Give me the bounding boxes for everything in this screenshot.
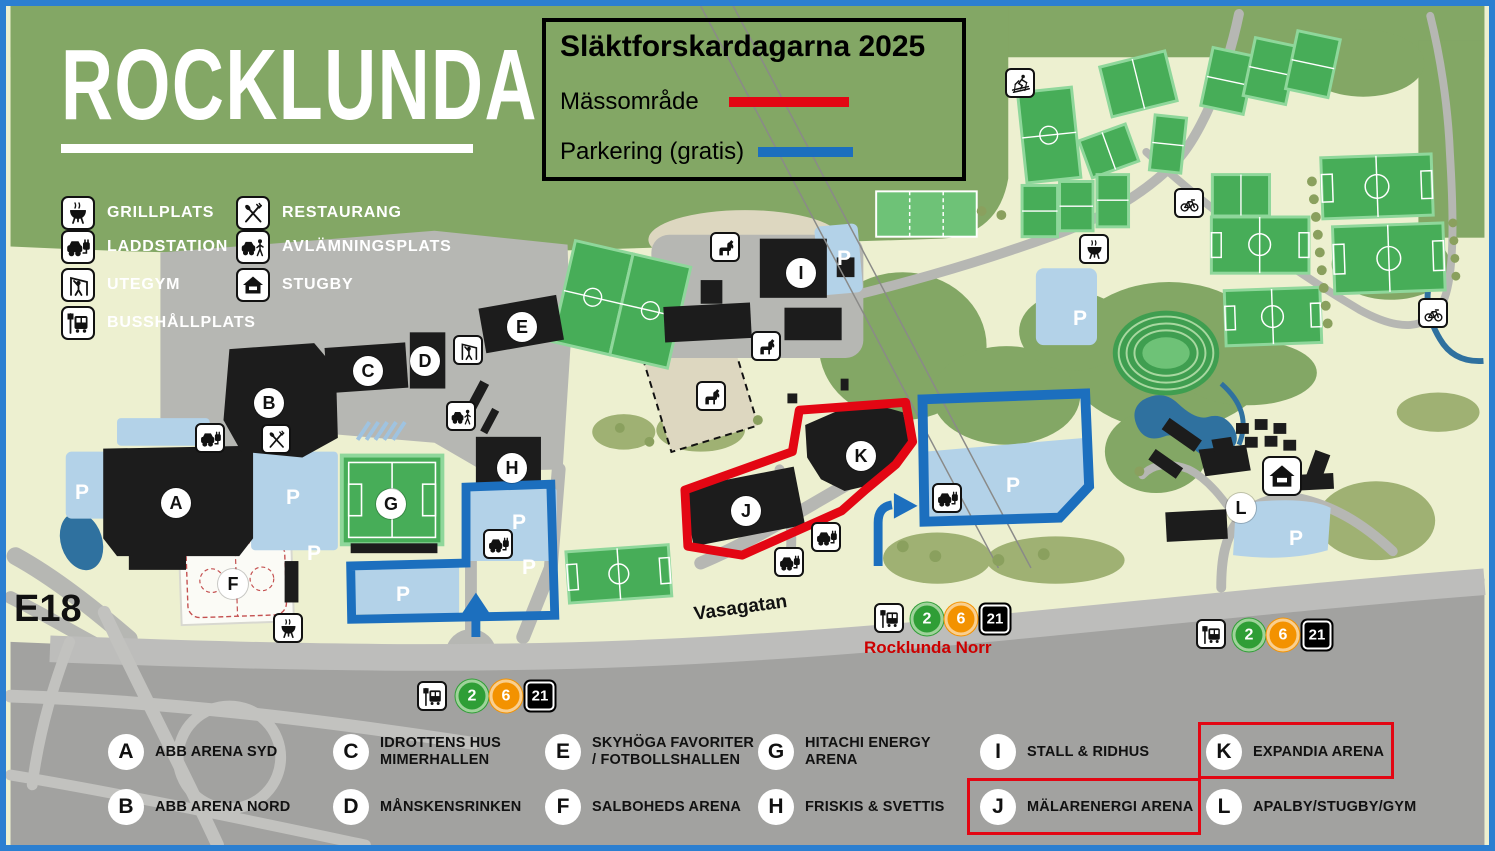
bus-line-badge: 21 xyxy=(1303,621,1332,650)
charging-station-icon xyxy=(483,529,513,559)
parking-label: P xyxy=(396,583,410,607)
index-name: SALBOHEDS ARENA xyxy=(592,799,741,816)
amenity-laddstation: LADDSTATION xyxy=(61,230,228,264)
parking-label: P xyxy=(837,247,851,271)
map-marker-a: A xyxy=(161,488,191,518)
rugby-courts xyxy=(876,191,977,236)
bus-stop-icon xyxy=(61,306,95,340)
index-name: IDROTTENS HUS MIMERHALLEN xyxy=(380,735,501,768)
map-marker-e: E xyxy=(507,312,537,342)
legend-item-massomrade: Mässområde xyxy=(560,88,849,116)
index-entry-f: F SALBOHEDS ARENA xyxy=(545,789,741,825)
legend-item-parkering: Parkering (gratis) xyxy=(560,138,853,166)
index-entry-g: G HITACHI ENERGY ARENA xyxy=(758,734,931,770)
bus-line-badge: 6 xyxy=(945,603,978,636)
parking-label: P xyxy=(1006,474,1020,498)
horse-riding-icon xyxy=(751,331,781,361)
index-name: APALBY/STUGBY/GYM xyxy=(1253,799,1416,816)
amenity-label: UTEGYM xyxy=(107,276,180,294)
restaurant-icon xyxy=(261,424,291,454)
parking-label: P xyxy=(1073,307,1087,331)
index-name: EXPANDIA ARENA xyxy=(1253,744,1384,761)
grill-icon xyxy=(1079,234,1109,264)
map-marker-d: D xyxy=(410,346,440,376)
parking-label: P xyxy=(522,556,536,580)
charging-station-icon xyxy=(195,423,225,453)
parking-label: P xyxy=(75,481,89,505)
index-entry-a: A ABB ARENA SYD xyxy=(108,734,277,770)
horse-riding-icon xyxy=(710,232,740,262)
amenity-label: STUGBY xyxy=(282,276,353,294)
map-marker-k: K xyxy=(846,441,876,471)
bus-line-badge: 21 xyxy=(981,605,1010,634)
index-letter: L xyxy=(1206,789,1242,825)
bus-line-badge: 2 xyxy=(456,680,489,713)
field-south xyxy=(566,545,672,603)
parkering-label: Parkering (gratis) xyxy=(560,138,744,166)
grill-icon xyxy=(61,196,95,230)
charging-station-icon xyxy=(932,483,962,513)
event-legend-title: Släktforskardagarna 2025 xyxy=(560,30,925,64)
amenity-restaurang: RESTAURANG xyxy=(236,196,402,230)
bus-line-badge: 6 xyxy=(490,680,523,713)
index-name: ABB ARENA NORD xyxy=(155,799,290,816)
index-name: STALL & RIDHUS xyxy=(1027,744,1149,761)
map-page: ROCKLUNDA Släktforskardagarna 2025 Mässo… xyxy=(0,0,1495,851)
restaurant-icon xyxy=(236,196,270,230)
map-marker-l: L xyxy=(1226,493,1256,523)
drop-off-icon xyxy=(446,401,476,431)
index-name: HITACHI ENERGY ARENA xyxy=(805,735,931,768)
index-letter: F xyxy=(545,789,581,825)
horse-riding-icon xyxy=(696,381,726,411)
drop-off-icon xyxy=(236,230,270,264)
charging-station-icon xyxy=(61,230,95,264)
massomrade-line-sample xyxy=(729,97,849,107)
parking-label: P xyxy=(307,542,321,566)
index-entry-e: E SKYHÖGA FAVORITER / FOTBOLLSHALLEN xyxy=(545,734,754,770)
bus-stop-icon xyxy=(417,681,447,711)
amenity-label: LADDSTATION xyxy=(107,238,228,256)
index-letter: B xyxy=(108,789,144,825)
cabin-icon xyxy=(236,268,270,302)
bus-line-badge: 21 xyxy=(526,682,555,711)
cabin-icon xyxy=(1262,456,1302,496)
charging-station-icon xyxy=(811,522,841,552)
index-letter: E xyxy=(545,734,581,770)
parking-label: P xyxy=(286,486,300,510)
map-marker-c: C xyxy=(353,356,383,386)
index-entry-b: B ABB ARENA NORD xyxy=(108,789,290,825)
amenity-grillplats: GRILLPLATS xyxy=(61,196,214,230)
parkering-line-sample xyxy=(758,147,853,157)
bus-line-badge: 2 xyxy=(1233,619,1266,652)
index-entry-k: K EXPANDIA ARENA xyxy=(1206,734,1384,770)
parking-label: P xyxy=(512,511,526,535)
index-letter: J xyxy=(980,789,1016,825)
bus-stop-icon xyxy=(1196,619,1226,649)
outdoor-gym-icon xyxy=(453,335,483,365)
index-entry-h: H FRISKIS & SVETTIS xyxy=(758,789,945,825)
skier-icon xyxy=(1005,68,1035,98)
amenity-label: GRILLPLATS xyxy=(107,204,214,222)
amenity-label: RESTAURANG xyxy=(282,204,402,222)
index-letter: A xyxy=(108,734,144,770)
outdoor-gym-icon xyxy=(61,268,95,302)
index-name: MÅNSKENSRINKEN xyxy=(380,799,521,816)
index-letter: G xyxy=(758,734,794,770)
highway-label-e18: E18 xyxy=(14,588,82,631)
bus-line-badge: 6 xyxy=(1267,619,1300,652)
index-letter: D xyxy=(333,789,369,825)
map-marker-h: H xyxy=(497,453,527,483)
index-entry-j: J MÄLARENERGI ARENA xyxy=(980,789,1193,825)
bus-stop-icon xyxy=(874,603,904,633)
index-letter: H xyxy=(758,789,794,825)
index-name: MÄLARENERGI ARENA xyxy=(1027,799,1193,816)
amenity-avlamningsplats: AVLÄMNINGSPLATS xyxy=(236,230,452,264)
bus-stop-name: Rocklunda Norr xyxy=(864,638,992,658)
map-marker-g: G xyxy=(376,489,406,519)
charging-station-icon xyxy=(774,547,804,577)
amenity-label: AVLÄMNINGSPLATS xyxy=(282,238,452,256)
running-track xyxy=(1113,311,1219,396)
parking-label: P xyxy=(1289,527,1303,551)
index-entry-l: L APALBY/STUGBY/GYM xyxy=(1206,789,1416,825)
bus-line-badge: 2 xyxy=(911,603,944,636)
map-marker-j: J xyxy=(731,496,761,526)
massomrade-label: Mässområde xyxy=(560,88,699,116)
map-marker-f: F xyxy=(218,569,248,599)
amenity-stugby: STUGBY xyxy=(236,268,353,302)
index-name: FRISKIS & SVETTIS xyxy=(805,799,945,816)
index-name: ABB ARENA SYD xyxy=(155,744,277,761)
amenity-utegym: UTEGYM xyxy=(61,268,180,302)
grill-icon xyxy=(273,613,303,643)
index-entry-d: D MÅNSKENSRINKEN xyxy=(333,789,521,825)
event-legend-box: Släktforskardagarna 2025 Mässområde Park… xyxy=(542,18,966,181)
index-entry-i: I STALL & RIDHUS xyxy=(980,734,1149,770)
index-entry-c: C IDROTTENS HUS MIMERHALLEN xyxy=(333,734,501,770)
rocklunda-logo: ROCKLUNDA xyxy=(61,28,538,143)
amenity-busshallplats: BUSSHÅLLPLATS xyxy=(61,306,256,340)
index-letter: I xyxy=(980,734,1016,770)
bicycle-icon xyxy=(1418,298,1448,328)
rocklunda-logo-underline xyxy=(61,144,473,153)
bicycle-icon xyxy=(1174,188,1204,218)
map-marker-i: I xyxy=(786,258,816,288)
index-letter: K xyxy=(1206,734,1242,770)
amenity-label: BUSSHÅLLPLATS xyxy=(107,314,256,332)
index-name: SKYHÖGA FAVORITER / FOTBOLLSHALLEN xyxy=(592,735,754,768)
map-marker-b: B xyxy=(254,388,284,418)
index-letter: C xyxy=(333,734,369,770)
